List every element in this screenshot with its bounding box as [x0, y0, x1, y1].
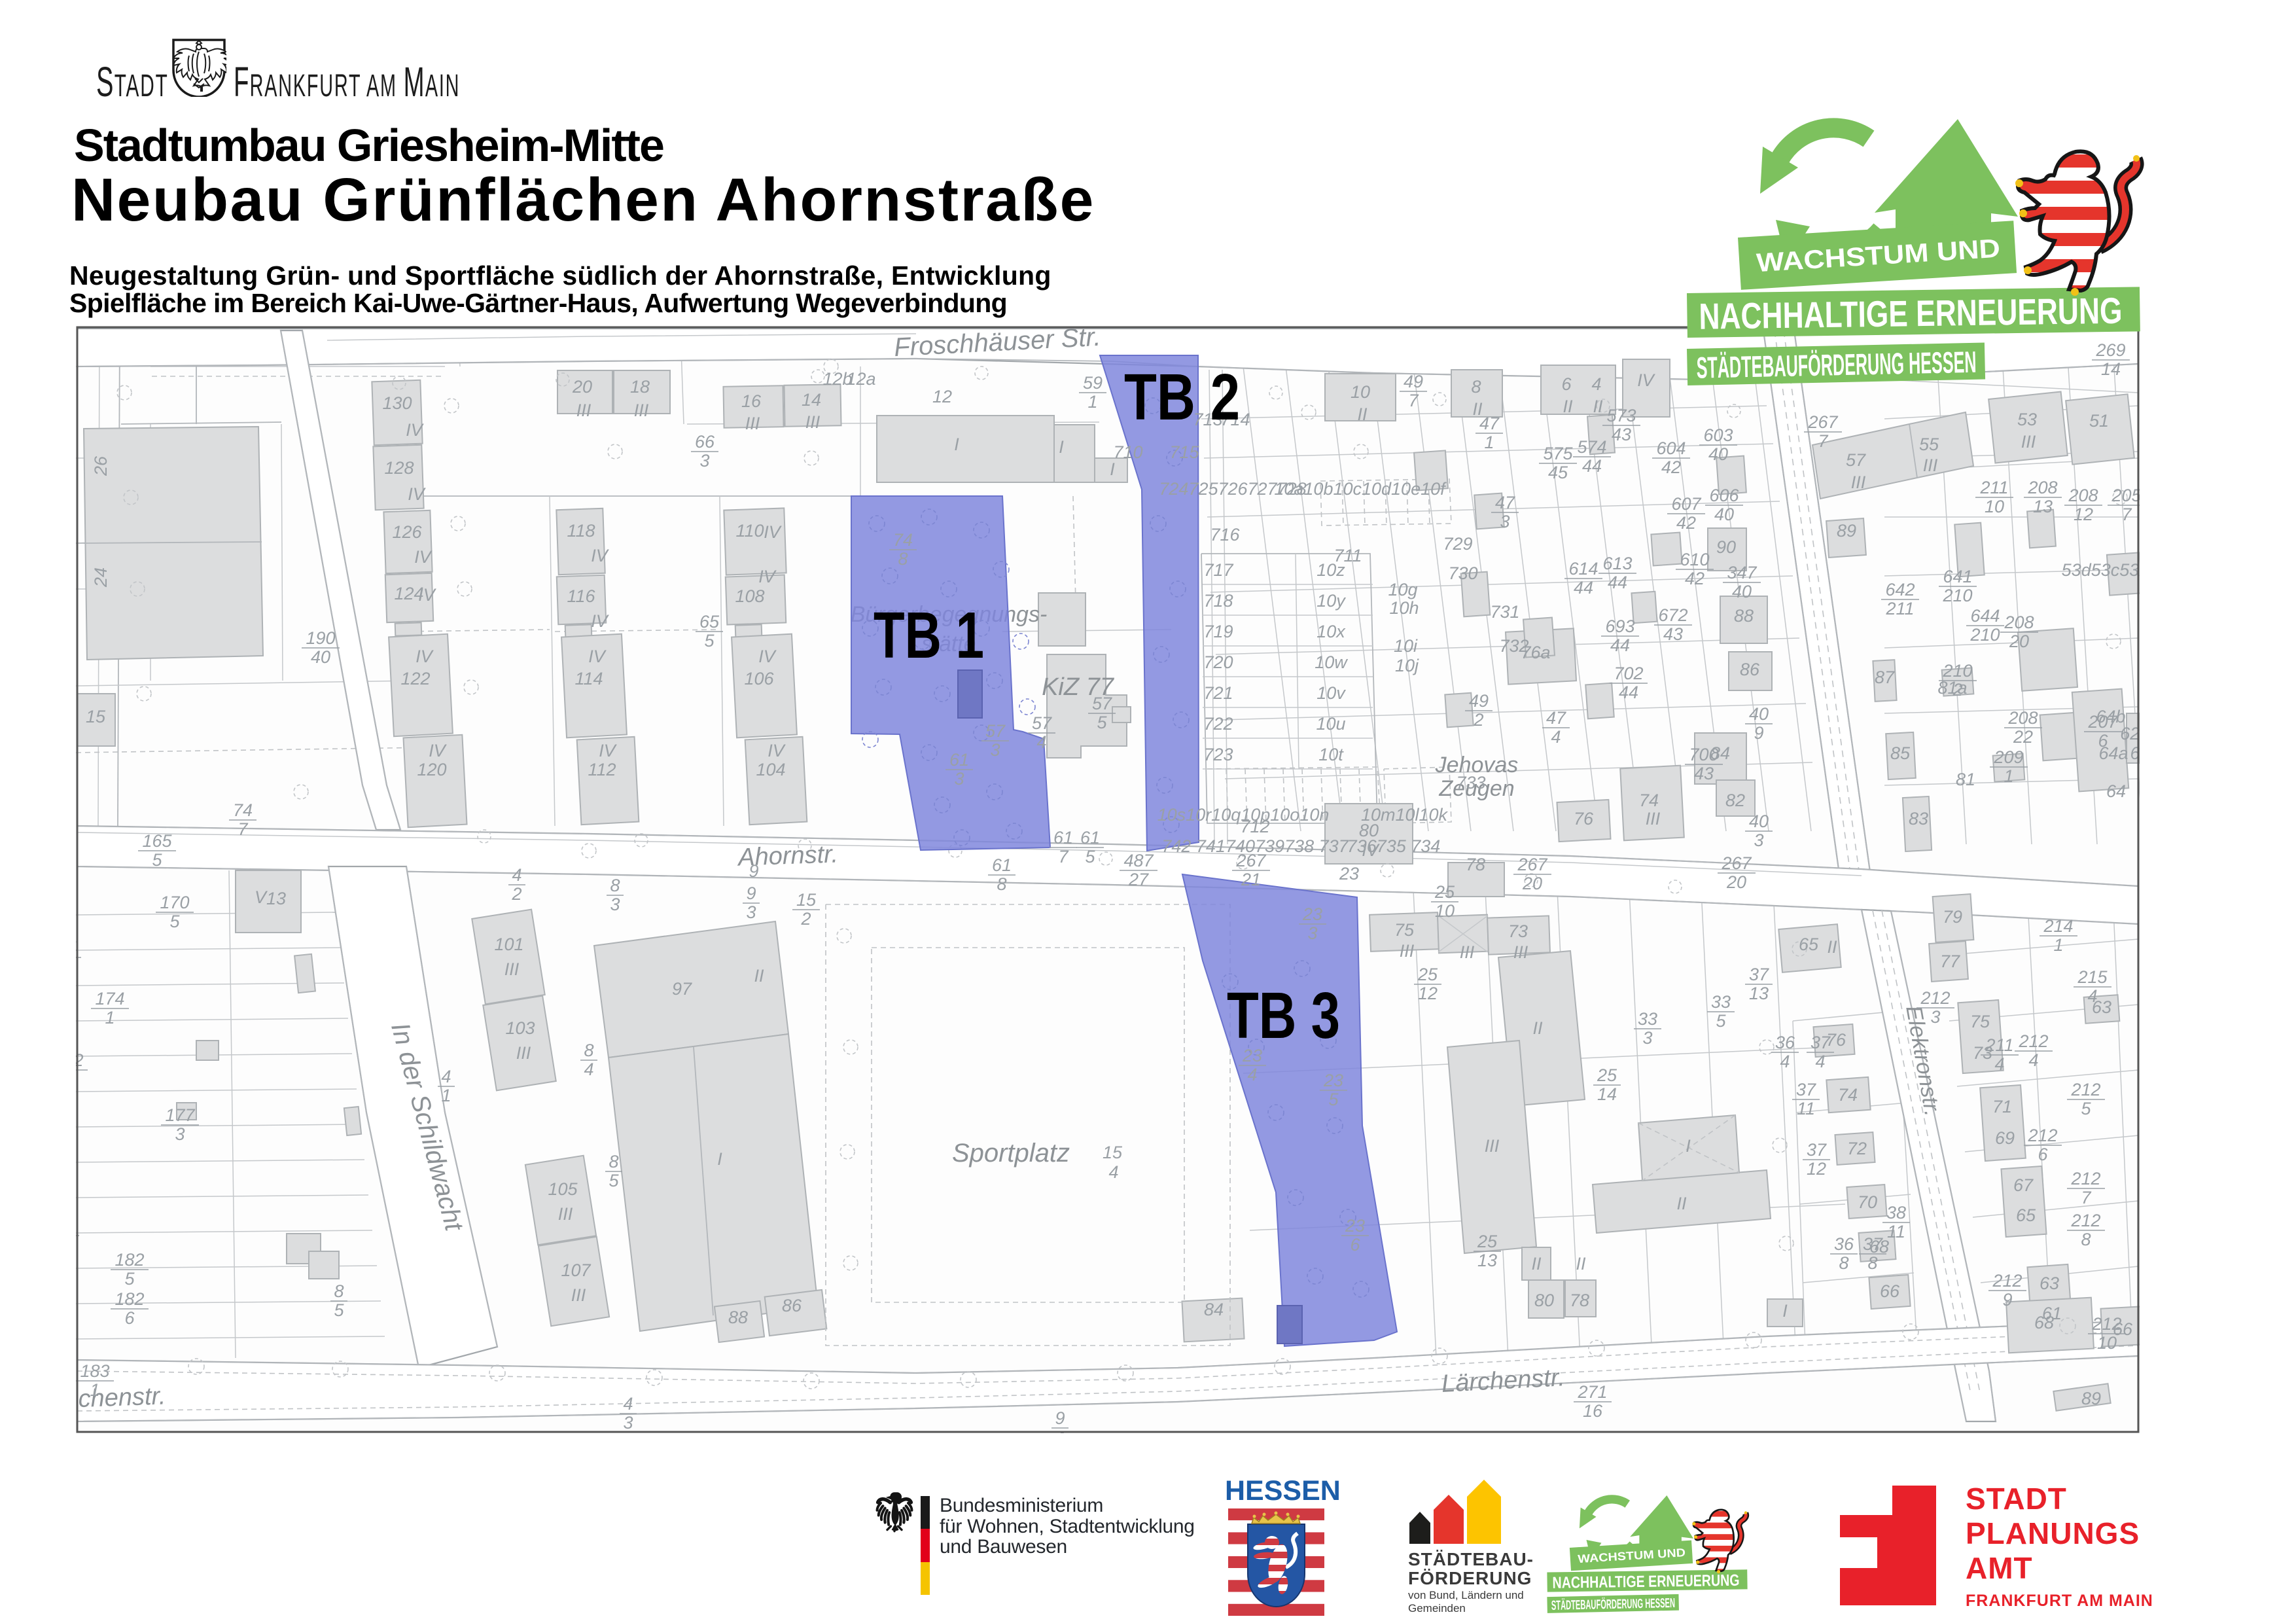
- svg-text:724725726727728: 724725726727728: [1159, 479, 1306, 499]
- svg-text:1: 1: [90, 1380, 99, 1400]
- svg-text:84: 84: [1710, 743, 1730, 763]
- svg-text:101: 101: [494, 935, 523, 954]
- svg-text:15: 15: [796, 890, 817, 910]
- svg-text:53: 53: [2017, 410, 2037, 429]
- svg-text:210: 210: [1969, 625, 2000, 645]
- svg-text:208: 208: [2004, 613, 2034, 632]
- svg-text:1: 1: [1087, 392, 1097, 412]
- svg-text:74: 74: [233, 800, 253, 820]
- svg-text:44: 44: [1608, 573, 1627, 592]
- svg-text:3: 3: [1642, 1028, 1652, 1048]
- svg-text:47: 47: [1546, 708, 1566, 728]
- svg-text:70: 70: [1858, 1192, 1877, 1212]
- svg-text:8: 8: [1839, 1253, 1848, 1273]
- svg-text:723: 723: [1203, 745, 1233, 764]
- svg-text:20: 20: [1522, 874, 1542, 893]
- svg-text:47: 47: [1495, 493, 1515, 512]
- svg-text:25: 25: [1477, 1232, 1498, 1251]
- svg-text:89: 89: [1837, 521, 1856, 541]
- svg-text:67: 67: [2013, 1175, 2034, 1195]
- svg-text:122: 122: [400, 669, 430, 688]
- svg-text:4: 4: [1551, 727, 1561, 747]
- svg-text:10j: 10j: [1395, 656, 1419, 675]
- svg-text:59: 59: [1083, 373, 1103, 393]
- svg-text:8: 8: [609, 1152, 618, 1171]
- svg-text:13: 13: [266, 889, 286, 908]
- svg-text:212: 212: [1920, 988, 1950, 1008]
- svg-text:110: 110: [735, 521, 764, 541]
- svg-text:I: I: [717, 1149, 722, 1169]
- svg-text:1: 1: [2004, 766, 2013, 786]
- svg-text:106: 106: [744, 669, 774, 688]
- svg-text:III: III: [1851, 473, 1866, 492]
- svg-text:5: 5: [1328, 1090, 1339, 1109]
- svg-text:IV: IV: [599, 741, 618, 760]
- svg-text:720: 720: [1203, 652, 1233, 672]
- svg-text:10i: 10i: [1394, 636, 1418, 656]
- svg-text:5: 5: [334, 1300, 344, 1320]
- svg-text:267: 267: [1517, 855, 1547, 874]
- svg-text:3: 3: [746, 902, 756, 922]
- svg-text:214: 214: [2043, 916, 2073, 936]
- svg-text:25: 25: [1417, 965, 1438, 984]
- svg-text:170: 170: [160, 893, 189, 912]
- svg-text:23: 23: [1345, 1216, 1365, 1236]
- svg-text:6: 6: [1350, 1235, 1360, 1255]
- svg-text:10w: 10w: [1315, 652, 1348, 672]
- svg-text:5: 5: [169, 912, 180, 931]
- svg-text:36: 36: [1775, 1033, 1795, 1052]
- svg-text:63: 63: [2040, 1274, 2059, 1293]
- svg-text:22: 22: [2013, 727, 2033, 747]
- svg-text:25: 25: [1434, 882, 1455, 902]
- svg-text:49: 49: [1469, 691, 1489, 711]
- svg-text:78: 78: [1570, 1291, 1589, 1310]
- svg-text:II: II: [1576, 1254, 1586, 1274]
- svg-text:43: 43: [1663, 624, 1683, 644]
- svg-text:8: 8: [997, 874, 1006, 894]
- svg-text:607: 607: [1671, 494, 1701, 514]
- svg-text:III: III: [516, 1043, 531, 1063]
- svg-text:57: 57: [1846, 450, 1866, 470]
- svg-text:5: 5: [1085, 847, 1095, 866]
- svg-text:V: V: [255, 887, 268, 907]
- svg-text:73: 73: [1973, 1043, 1992, 1063]
- svg-text:644: 644: [1970, 606, 2000, 626]
- svg-text:IV: IV: [758, 567, 777, 586]
- svg-text:57: 57: [1032, 713, 1052, 733]
- svg-text:702: 702: [1614, 664, 1643, 683]
- svg-text:33: 33: [1638, 1009, 1657, 1029]
- svg-text:182: 182: [115, 1250, 144, 1270]
- svg-text:23: 23: [1323, 1071, 1343, 1090]
- svg-text:81: 81: [1956, 770, 1975, 789]
- svg-text:614: 614: [1568, 559, 1598, 579]
- svg-text:12: 12: [932, 387, 952, 406]
- svg-text:IV: IV: [418, 585, 437, 605]
- svg-text:43: 43: [1694, 764, 1714, 783]
- svg-text:76a: 76a: [1521, 643, 1550, 662]
- svg-text:77: 77: [1940, 952, 1960, 971]
- svg-text:40: 40: [1749, 704, 1769, 724]
- svg-text:44: 44: [1582, 456, 1602, 476]
- svg-text:55: 55: [1919, 435, 1939, 454]
- svg-text:2: 2: [511, 884, 521, 904]
- svg-text:II: II: [1676, 1194, 1687, 1213]
- svg-text:104: 104: [756, 760, 785, 779]
- svg-text:4: 4: [441, 1067, 451, 1086]
- svg-text:10t: 10t: [1318, 745, 1344, 764]
- svg-text:66: 66: [2113, 1319, 2133, 1339]
- svg-text:3: 3: [610, 895, 620, 914]
- svg-text:74: 74: [1639, 791, 1659, 810]
- svg-text:73: 73: [1508, 921, 1528, 941]
- svg-text:12: 12: [1807, 1159, 1826, 1179]
- svg-text:9: 9: [1055, 1408, 1065, 1428]
- svg-text:13: 13: [1477, 1251, 1497, 1270]
- svg-text:177: 177: [165, 1105, 195, 1125]
- svg-text:47: 47: [1479, 414, 1500, 433]
- svg-text:III: III: [1513, 942, 1528, 962]
- svg-text:112: 112: [588, 760, 616, 779]
- svg-text:711: 711: [1333, 546, 1362, 565]
- svg-text:1: 1: [105, 1008, 115, 1027]
- svg-text:12a: 12a: [846, 369, 875, 389]
- svg-text:76: 76: [1826, 1030, 1846, 1050]
- svg-text:11: 11: [1797, 1099, 1815, 1118]
- svg-text:212: 212: [1992, 1271, 2022, 1291]
- svg-text:3: 3: [699, 451, 709, 471]
- svg-text:7: 7: [1408, 391, 1419, 410]
- svg-text:53d53c53b53a: 53d53c53b53a: [2062, 560, 2140, 580]
- svg-text:604: 604: [1656, 438, 1686, 458]
- svg-text:126: 126: [392, 522, 422, 542]
- svg-text:603: 603: [1703, 425, 1733, 445]
- svg-text:75: 75: [1970, 1012, 1990, 1031]
- svg-text:IV: IV: [1362, 840, 1381, 860]
- svg-text:211: 211: [1885, 599, 1914, 618]
- svg-text:3: 3: [623, 1413, 633, 1433]
- svg-text:86: 86: [1740, 660, 1760, 679]
- svg-text:116: 116: [567, 586, 595, 606]
- svg-text:23: 23: [1339, 864, 1359, 883]
- svg-text:10g: 10g: [1388, 580, 1417, 599]
- svg-text:5: 5: [704, 631, 715, 651]
- svg-text:209: 209: [1993, 747, 2023, 767]
- svg-text:9: 9: [746, 883, 756, 903]
- svg-text:IV: IV: [429, 741, 448, 760]
- svg-text:63: 63: [2092, 997, 2111, 1017]
- svg-text:118: 118: [567, 521, 595, 541]
- svg-text:III: III: [805, 412, 821, 432]
- svg-text:721: 721: [1203, 683, 1233, 703]
- svg-text:7: 7: [1818, 431, 1828, 451]
- svg-text:212: 212: [2070, 1211, 2100, 1230]
- svg-text:10: 10: [1985, 497, 2004, 516]
- svg-text:III: III: [571, 1285, 586, 1305]
- svg-text:5: 5: [152, 850, 162, 870]
- svg-text:10: 10: [1351, 382, 1370, 402]
- svg-text:4: 4: [1780, 1052, 1790, 1071]
- svg-text:III: III: [1646, 809, 1661, 829]
- svg-text:10v: 10v: [1316, 683, 1346, 703]
- svg-text:641: 641: [1943, 567, 1972, 586]
- svg-text:III: III: [558, 1204, 573, 1224]
- svg-text:16: 16: [741, 391, 762, 411]
- svg-text:IV: IV: [415, 647, 434, 666]
- svg-text:61: 61: [2042, 1304, 2062, 1323]
- svg-text:45: 45: [1548, 463, 1568, 482]
- svg-text:487: 487: [1123, 851, 1154, 870]
- svg-text:107: 107: [561, 1260, 591, 1280]
- svg-text:III: III: [576, 401, 592, 420]
- svg-text:4: 4: [584, 1060, 593, 1079]
- svg-text:212: 212: [2018, 1031, 2048, 1051]
- svg-text:10u: 10u: [1316, 714, 1345, 734]
- svg-text:65: 65: [699, 612, 720, 632]
- svg-text:5: 5: [609, 1171, 619, 1190]
- svg-text:10h: 10h: [1389, 598, 1419, 618]
- svg-text:44: 44: [1574, 578, 1593, 597]
- svg-text:76: 76: [1574, 809, 1594, 829]
- svg-text:III: III: [1485, 1136, 1500, 1156]
- svg-text:8: 8: [2081, 1230, 2091, 1249]
- svg-text:III: III: [504, 959, 520, 979]
- svg-text:722: 722: [1203, 714, 1233, 734]
- svg-text:5: 5: [1097, 713, 1107, 732]
- svg-text:9: 9: [1754, 723, 1763, 743]
- svg-text:4: 4: [1815, 1052, 1825, 1071]
- svg-text:25: 25: [1597, 1065, 1617, 1085]
- svg-text:718: 718: [1203, 591, 1233, 611]
- svg-text:3: 3: [954, 769, 964, 789]
- svg-text:7: 7: [1058, 847, 1069, 866]
- svg-text:212: 212: [2070, 1080, 2100, 1099]
- svg-text:24: 24: [91, 567, 111, 588]
- svg-text:716: 716: [1210, 525, 1240, 544]
- svg-text:44: 44: [1610, 635, 1630, 655]
- svg-text:26: 26: [91, 455, 111, 476]
- svg-text:TB 2: TB 2: [1124, 361, 1240, 434]
- svg-text:74: 74: [893, 530, 913, 550]
- svg-text:IV: IV: [414, 547, 433, 567]
- svg-text:2: 2: [1473, 710, 1483, 730]
- svg-text:12: 12: [2074, 505, 2093, 524]
- svg-text:11: 11: [1887, 1222, 1905, 1241]
- svg-text:23: 23: [1302, 904, 1322, 924]
- svg-text:61: 61: [1053, 828, 1073, 847]
- svg-text:IV: IV: [406, 420, 425, 440]
- svg-text:5: 5: [2081, 1099, 2091, 1118]
- svg-text:717: 717: [1203, 560, 1233, 580]
- svg-text:574: 574: [1577, 437, 1606, 457]
- svg-text:14: 14: [802, 390, 821, 410]
- svg-text:729: 729: [1443, 534, 1472, 554]
- svg-text:211: 211: [1979, 478, 2008, 497]
- svg-text:I: I: [1782, 1301, 1788, 1321]
- svg-text:IV: IV: [1637, 370, 1656, 390]
- svg-text:208: 208: [2007, 708, 2038, 728]
- svg-text:1: 1: [1484, 433, 1494, 452]
- svg-text:II: II: [1357, 404, 1368, 424]
- svg-text:IV: IV: [764, 522, 783, 542]
- svg-text:65: 65: [1799, 935, 1819, 954]
- svg-text:81a: 81a: [1937, 678, 1967, 698]
- svg-text:IV: IV: [408, 484, 427, 504]
- svg-text:61: 61: [992, 855, 1012, 875]
- svg-text:75: 75: [1394, 920, 1415, 940]
- svg-text:672: 672: [1658, 605, 1687, 625]
- svg-text:5: 5: [1716, 1011, 1726, 1031]
- svg-text:733: 733: [1456, 773, 1485, 793]
- svg-text:57: 57: [985, 721, 1006, 741]
- svg-text:347: 347: [1727, 563, 1757, 582]
- svg-text:83: 83: [1909, 809, 1928, 829]
- svg-text:78: 78: [1466, 855, 1485, 874]
- svg-text:66: 66: [1880, 1281, 1900, 1301]
- svg-text:68: 68: [1869, 1237, 1889, 1257]
- svg-text:10x: 10x: [1316, 622, 1346, 641]
- svg-text:6: 6: [124, 1308, 135, 1328]
- svg-text:62c: 62c: [2120, 724, 2140, 743]
- svg-text:40: 40: [1749, 811, 1769, 831]
- svg-text:642: 642: [1885, 580, 1915, 599]
- svg-text:3: 3: [175, 1124, 185, 1144]
- svg-text:8: 8: [610, 876, 620, 895]
- svg-text:IV: IV: [588, 647, 607, 666]
- svg-text:4: 4: [2028, 1050, 2038, 1070]
- svg-text:40: 40: [311, 647, 330, 667]
- svg-text:613: 613: [1602, 554, 1632, 573]
- svg-text:III: III: [1400, 941, 1415, 961]
- svg-text:120: 120: [417, 760, 446, 779]
- svg-text:42: 42: [1685, 569, 1704, 588]
- svg-text:165: 165: [142, 831, 172, 851]
- svg-text:III: III: [1460, 942, 1475, 962]
- svg-text:114: 114: [574, 669, 603, 688]
- svg-text:182: 182: [115, 1289, 144, 1309]
- svg-text:I: I: [954, 435, 959, 454]
- svg-text:18: 18: [630, 377, 650, 397]
- svg-text:TB 3: TB 3: [1227, 979, 1340, 1052]
- svg-text:15: 15: [1103, 1143, 1123, 1162]
- svg-text:87: 87: [1875, 668, 1895, 687]
- svg-text:4: 4: [1036, 732, 1046, 752]
- svg-text:16: 16: [1583, 1401, 1603, 1421]
- svg-text:3: 3: [1930, 1007, 1940, 1027]
- svg-text:STÄDTEBAUFÖRDERUNG HESSEN: STÄDTEBAUFÖRDERUNG HESSEN: [1696, 345, 1977, 385]
- svg-text:2: 2: [800, 909, 811, 929]
- svg-text:I: I: [1059, 437, 1064, 457]
- svg-text:71: 71: [1992, 1097, 2012, 1116]
- svg-text:14: 14: [1597, 1084, 1617, 1104]
- svg-text:128: 128: [384, 458, 414, 478]
- svg-text:208: 208: [2068, 486, 2098, 505]
- svg-text:6: 6: [2038, 1145, 2048, 1164]
- svg-text:44: 44: [1619, 683, 1638, 702]
- svg-text:II: II: [1563, 397, 1573, 416]
- svg-text:710: 710: [1113, 442, 1142, 462]
- svg-text:82: 82: [1725, 791, 1745, 810]
- svg-text:37: 37: [1796, 1080, 1816, 1099]
- svg-text:III: III: [634, 401, 649, 420]
- svg-text:12: 12: [1418, 984, 1438, 1003]
- svg-text:7: 7: [238, 819, 248, 839]
- svg-text:I: I: [1686, 1136, 1691, 1156]
- svg-text:49: 49: [1404, 372, 1423, 391]
- svg-text:20: 20: [2009, 632, 2029, 651]
- svg-text:NACHHALTIGE ERNEUERUNG: NACHHALTIGE ERNEUERUNG: [1699, 290, 2123, 337]
- svg-text:4: 4: [1247, 1065, 1257, 1084]
- svg-text:65: 65: [2016, 1205, 2036, 1225]
- svg-text:130: 130: [382, 393, 412, 413]
- svg-text:3: 3: [1500, 512, 1510, 531]
- svg-text:20: 20: [1726, 872, 1746, 892]
- svg-text:42: 42: [1676, 513, 1696, 533]
- svg-text:61: 61: [949, 750, 969, 770]
- svg-text:TB 1: TB 1: [874, 599, 984, 672]
- svg-text:10: 10: [1435, 901, 1455, 921]
- svg-text:57: 57: [1092, 694, 1112, 713]
- svg-text:88: 88: [728, 1308, 748, 1327]
- svg-text:210: 210: [1942, 586, 1972, 605]
- svg-text:21: 21: [1241, 870, 1261, 889]
- svg-text:II: II: [1532, 1018, 1543, 1038]
- svg-text:IV: IV: [758, 647, 777, 666]
- svg-text:8: 8: [898, 549, 908, 569]
- svg-text:105: 105: [548, 1179, 578, 1199]
- svg-text:80: 80: [1534, 1291, 1554, 1310]
- svg-text:40: 40: [1732, 582, 1752, 601]
- svg-text:267: 267: [1721, 853, 1752, 873]
- svg-text:190: 190: [306, 628, 335, 648]
- svg-text:II: II: [1827, 937, 1837, 957]
- svg-text:10s10r10q10p10o10n: 10s10r10q10p10o10n: [1157, 805, 1330, 825]
- svg-text:80: 80: [1359, 821, 1379, 840]
- svg-text:74: 74: [1838, 1085, 1858, 1105]
- svg-text:3: 3: [1307, 923, 1317, 943]
- svg-text:90: 90: [1716, 537, 1736, 557]
- svg-text:66: 66: [695, 432, 715, 452]
- svg-text:40: 40: [1714, 505, 1734, 524]
- svg-text:606: 606: [1709, 486, 1739, 505]
- svg-text:715: 715: [1169, 442, 1199, 462]
- svg-text:42: 42: [1661, 457, 1681, 477]
- svg-text:II: II: [754, 966, 764, 986]
- svg-text:8: 8: [584, 1041, 593, 1060]
- svg-text:6: 6: [1561, 374, 1572, 394]
- svg-text:4: 4: [1108, 1162, 1118, 1182]
- svg-text:742 741740739738 737: 742 741740739738 737: [1161, 836, 1349, 856]
- svg-text:208: 208: [2027, 478, 2057, 497]
- svg-text:205: 205: [2111, 486, 2140, 505]
- svg-text:4: 4: [1994, 1054, 2004, 1074]
- svg-text:85: 85: [1890, 743, 1911, 763]
- svg-text:3: 3: [990, 740, 1000, 760]
- svg-text:33: 33: [1711, 992, 1731, 1012]
- svg-text:86: 86: [782, 1296, 802, 1315]
- svg-text:4: 4: [623, 1394, 633, 1414]
- svg-text:72: 72: [1847, 1139, 1867, 1158]
- svg-text:69: 69: [1995, 1128, 2015, 1148]
- svg-text:10y: 10y: [1316, 591, 1346, 611]
- svg-text:51: 51: [2089, 411, 2109, 431]
- svg-text:88: 88: [1734, 606, 1754, 626]
- svg-text:8: 8: [1471, 377, 1481, 397]
- svg-text:79: 79: [1943, 907, 1962, 927]
- svg-text:103: 103: [505, 1018, 535, 1038]
- svg-text:1: 1: [2053, 935, 2063, 955]
